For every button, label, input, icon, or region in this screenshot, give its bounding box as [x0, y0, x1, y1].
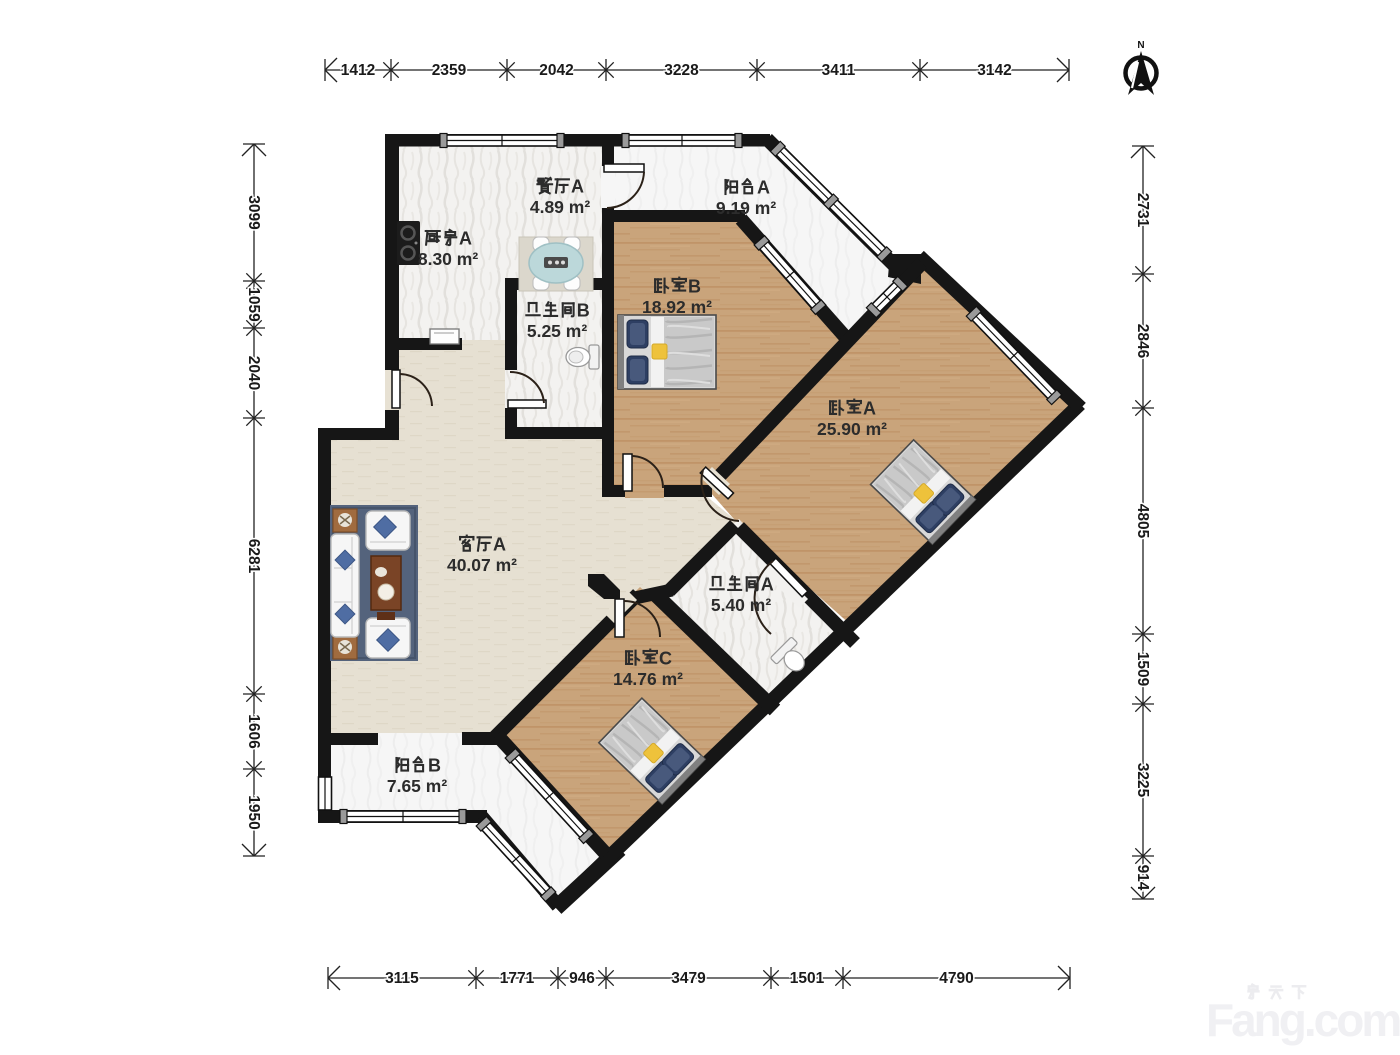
svg-text:3142: 3142 — [977, 62, 1011, 79]
svg-text:3225: 3225 — [1134, 763, 1151, 798]
svg-text:2040: 2040 — [245, 356, 262, 390]
svg-text:B: B — [428, 756, 441, 776]
svg-text:A: A — [493, 535, 506, 555]
svg-text:A: A — [863, 399, 876, 419]
svg-text:1059: 1059 — [245, 287, 262, 322]
svg-text:A: A — [459, 229, 472, 249]
svg-text:2846: 2846 — [1134, 324, 1151, 359]
svg-text:2042: 2042 — [539, 62, 573, 79]
svg-text:14.76 m²: 14.76 m² — [613, 669, 683, 689]
svg-text:A: A — [761, 575, 774, 595]
svg-text:2731: 2731 — [1134, 193, 1151, 228]
svg-text:3115: 3115 — [385, 970, 419, 987]
svg-text:B: B — [577, 301, 590, 321]
svg-text:1950: 1950 — [245, 795, 262, 829]
svg-text:1501: 1501 — [790, 970, 825, 987]
svg-text:1771: 1771 — [500, 970, 535, 987]
svg-text:5.25 m²: 5.25 m² — [527, 321, 587, 341]
svg-text:2359: 2359 — [432, 62, 467, 79]
svg-text:40.07 m²: 40.07 m² — [447, 555, 517, 575]
svg-text:A: A — [757, 178, 770, 198]
svg-text:3479: 3479 — [671, 970, 706, 987]
svg-text:B: B — [688, 277, 701, 297]
svg-text:3099: 3099 — [245, 195, 262, 230]
svg-text:4790: 4790 — [939, 970, 973, 987]
svg-text:1412: 1412 — [341, 62, 375, 79]
svg-text:N: N — [1137, 40, 1144, 51]
svg-text:6281: 6281 — [245, 539, 262, 574]
svg-text:1509: 1509 — [1134, 652, 1151, 687]
svg-text:25.90 m²: 25.90 m² — [817, 419, 887, 439]
svg-text:18.92 m²: 18.92 m² — [642, 297, 712, 317]
svg-text:3411: 3411 — [822, 62, 856, 79]
svg-text:5.40 m²: 5.40 m² — [711, 595, 771, 615]
svg-text:9.19 m²: 9.19 m² — [716, 198, 776, 218]
svg-text:7.65 m²: 7.65 m² — [387, 776, 447, 796]
svg-text:4.89 m²: 4.89 m² — [530, 197, 590, 217]
svg-text:914: 914 — [1134, 865, 1151, 891]
svg-text:1606: 1606 — [245, 714, 262, 749]
svg-text:4805: 4805 — [1134, 504, 1151, 539]
svg-text:3228: 3228 — [664, 62, 699, 79]
svg-text:Fang.com: Fang.com — [1206, 994, 1400, 1046]
svg-text:8.30 m²: 8.30 m² — [418, 249, 478, 269]
svg-text:946: 946 — [569, 970, 595, 987]
svg-text:A: A — [571, 177, 584, 197]
svg-text:C: C — [659, 649, 672, 669]
